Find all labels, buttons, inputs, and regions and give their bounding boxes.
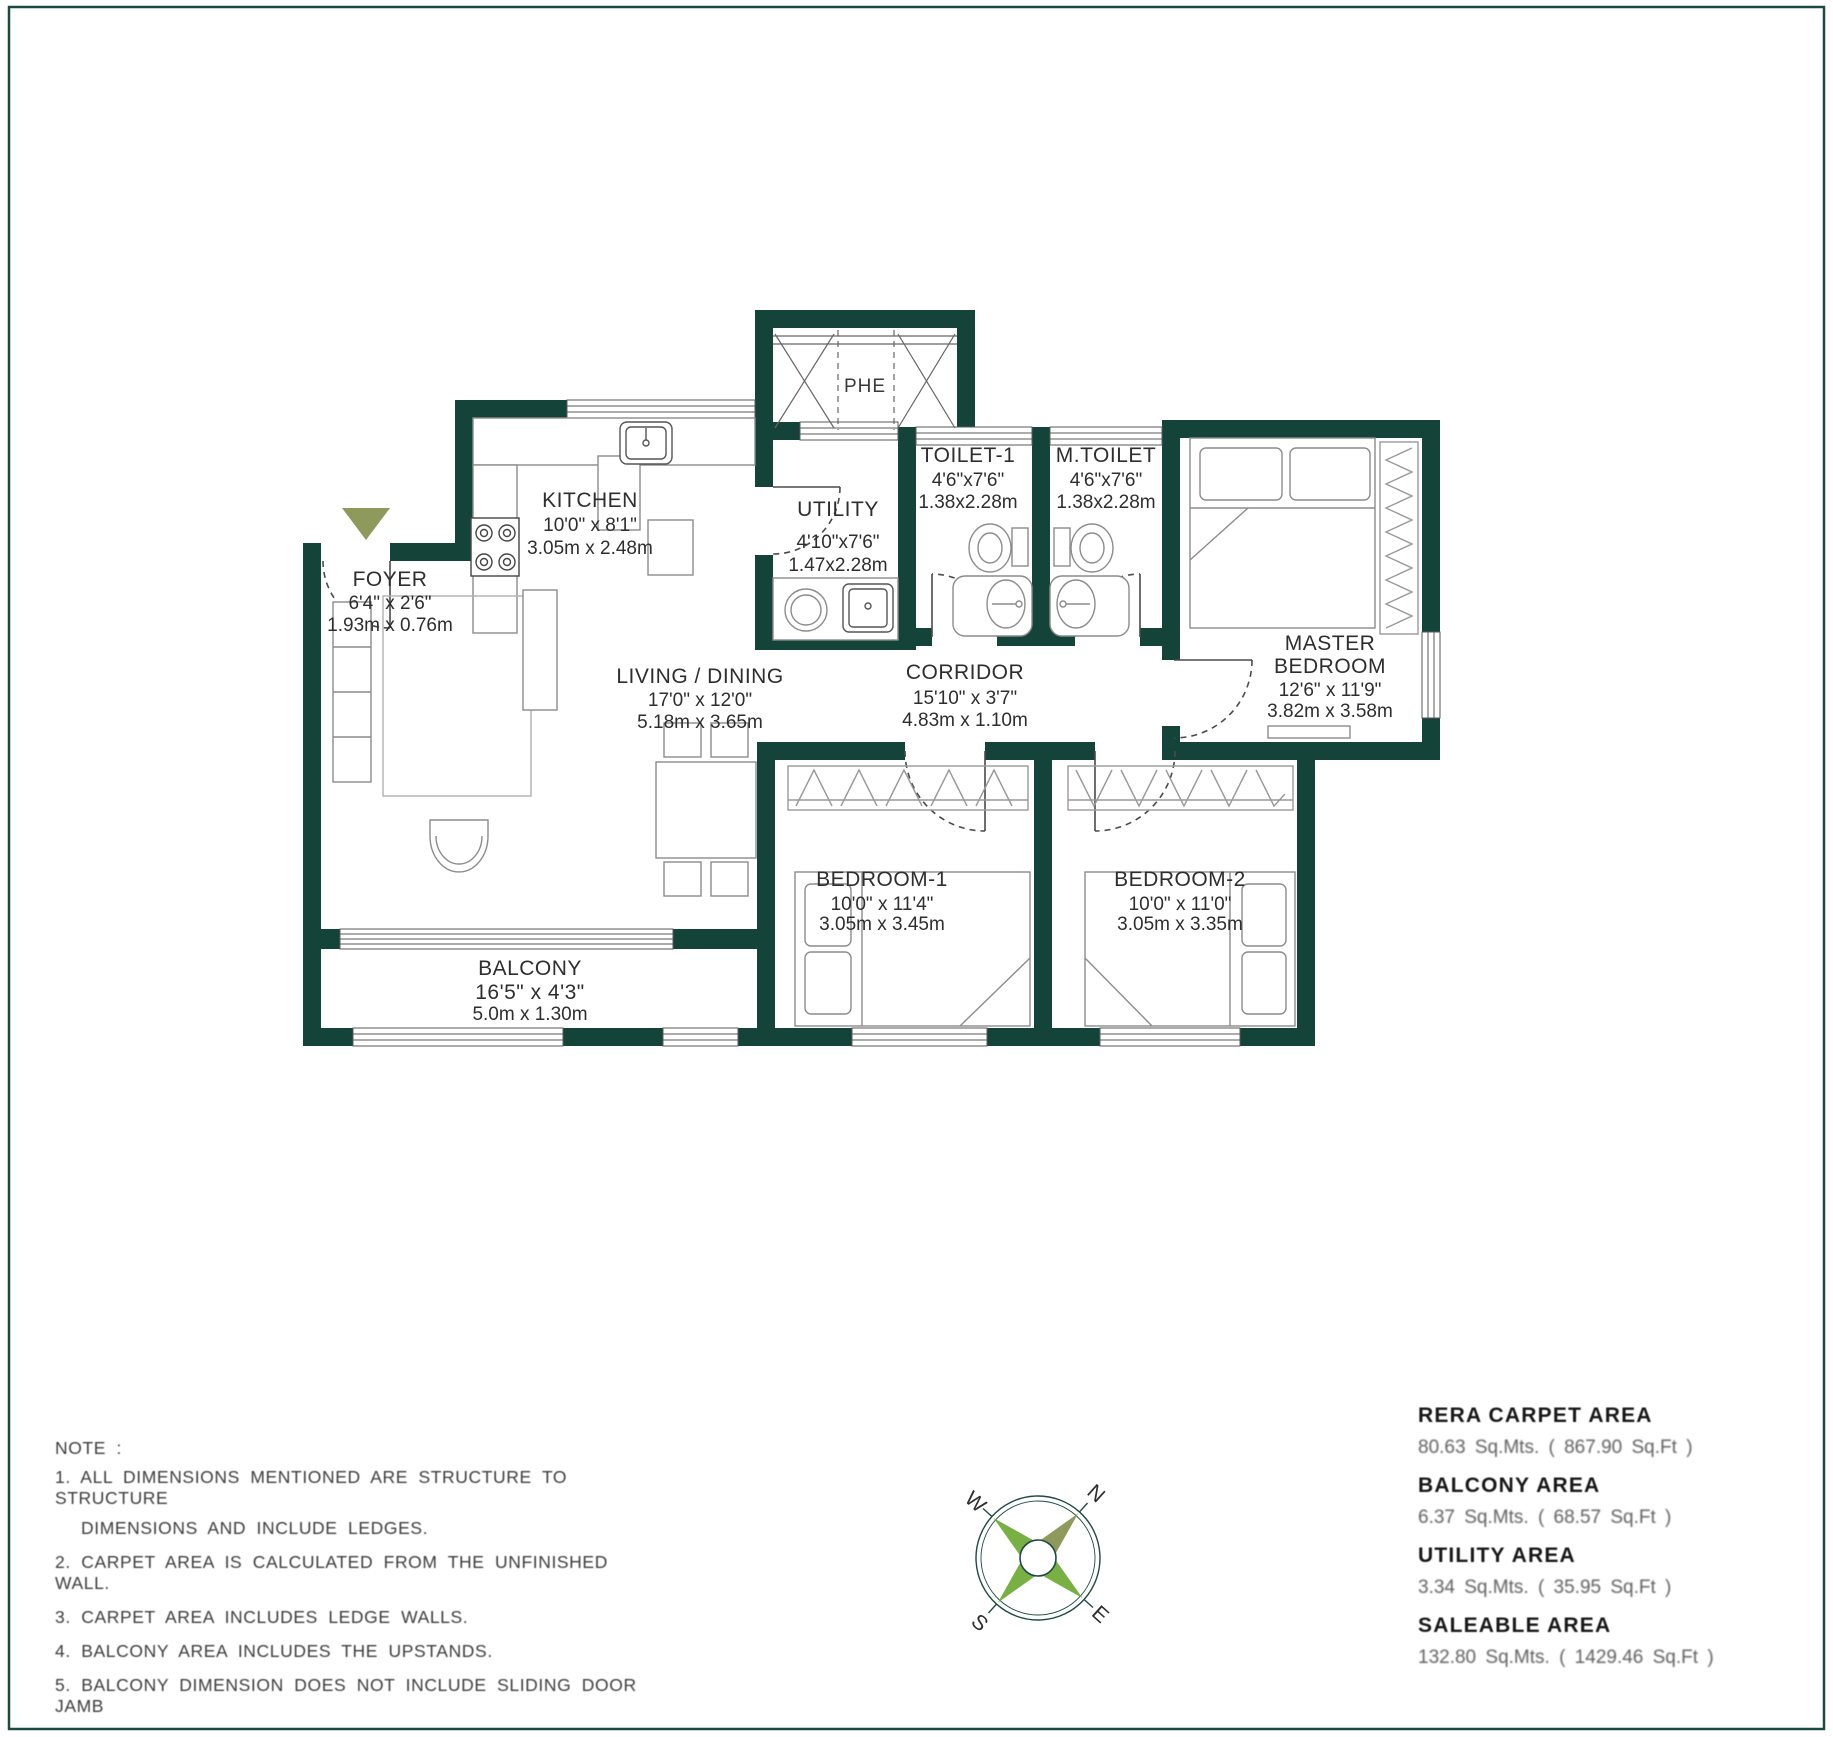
kitchen-sink — [620, 422, 672, 464]
svg-text:UTILITY: UTILITY — [797, 498, 879, 521]
kitchen-window — [567, 400, 755, 418]
entry-arrow-icon — [342, 508, 390, 540]
svg-text:CORRIDOR: CORRIDOR — [906, 661, 1024, 684]
compass-s: S — [967, 1610, 993, 1636]
kitchen-label: KITCHEN 10'0" x 8'1" 3.05m x 2.48m — [527, 489, 653, 559]
svg-text:M.TOILET: M.TOILET — [1056, 444, 1156, 467]
svg-text:10'0" x 11'0": 10'0" x 11'0" — [1129, 894, 1232, 915]
utility-area-label: UTILITY AREA — [1418, 1544, 1818, 1568]
svg-text:1.38x2.28m: 1.38x2.28m — [918, 492, 1017, 513]
balcony-rail — [353, 1028, 563, 1046]
utility-window — [800, 422, 898, 440]
balcony-label: BALCONY 16'5" x 4'3" 5.0m x 1.30m — [472, 957, 587, 1025]
note-item: 5. BALCONY DIMENSION DOES NOT INCLUDE SL… — [55, 1675, 655, 1717]
balcony-window — [663, 1028, 738, 1046]
svg-text:12'6" x 11'9": 12'6" x 11'9" — [1279, 680, 1382, 701]
saleable-area-label: SALEABLE AREA — [1418, 1614, 1818, 1638]
mtoilet-label: M.TOILET 4'6"x7'6" 1.38x2.28m — [1056, 444, 1156, 513]
stove-icon — [471, 518, 519, 576]
master-bedroom-label: MASTER BEDROOM 12'6" x 11'9" 3.82m x 3.5… — [1267, 632, 1393, 722]
bedroom1-window — [852, 1028, 987, 1046]
floorplan-page: { "colors": { "wall": "#14433A", "ring":… — [0, 0, 1833, 1737]
master-wardrobe — [1380, 442, 1418, 634]
master-bed — [1190, 438, 1375, 628]
toilet1-wc-icon — [969, 524, 1028, 572]
balcony-area-label: BALCONY AREA — [1418, 1474, 1818, 1498]
bedroom1-wardrobe — [788, 766, 1028, 810]
note-item: 4. BALCONY AREA INCLUDES THE UPSTANDS. — [55, 1641, 655, 1662]
notes-title: NOTE : — [55, 1438, 655, 1459]
bedroom2-wardrobe — [1068, 766, 1293, 810]
svg-text:LIVING / DINING: LIVING / DINING — [616, 665, 783, 688]
toilet1-basin-icon — [953, 576, 1032, 636]
svg-text:BEDROOM-2: BEDROOM-2 — [1114, 868, 1246, 891]
svg-text:5.18m x 3.65m: 5.18m x 3.65m — [637, 712, 763, 733]
dining-set — [656, 723, 756, 896]
svg-text:4'6"x7'6": 4'6"x7'6" — [932, 470, 1005, 491]
svg-text:16'5" x 4'3": 16'5" x 4'3" — [475, 981, 585, 1004]
svg-text:BEDROOM: BEDROOM — [1274, 655, 1386, 678]
note-item-continued: DIMENSIONS AND INCLUDE LEDGES. — [55, 1518, 655, 1539]
note-item: 3. CARPET AREA INCLUDES LEDGE WALLS. — [55, 1607, 655, 1628]
washing-machine-icon — [785, 589, 827, 631]
area-statement: RERA CARPET AREA 80.63 Sq.Mts. ( 867.90 … — [1418, 1404, 1818, 1684]
saleable-area-value: 132.80 Sq.Mts. ( 1429.46 Sq.Ft ) — [1418, 1647, 1818, 1669]
mtoilet-wc-icon — [1054, 524, 1113, 572]
svg-text:BALCONY: BALCONY — [478, 957, 582, 980]
svg-text:BEDROOM-1: BEDROOM-1 — [816, 868, 948, 891]
notes-block: NOTE : 1. ALL DIMENSIONS MENTIONED ARE S… — [55, 1438, 655, 1730]
svg-text:3.82m x 3.58m: 3.82m x 3.58m — [1267, 701, 1393, 722]
svg-text:1.38x2.28m: 1.38x2.28m — [1056, 492, 1155, 513]
phe-label: PHE — [844, 376, 886, 397]
svg-text:10'0" x 8'1": 10'0" x 8'1" — [543, 515, 637, 536]
living-dining-label: LIVING / DINING 17'0" x 12'0" 5.18m x 3.… — [616, 665, 783, 733]
svg-text:17'0" x 12'0": 17'0" x 12'0" — [648, 690, 752, 711]
toilet1-window — [916, 427, 1032, 445]
tv-unit — [523, 590, 557, 710]
bedroom2-door — [1095, 751, 1175, 831]
mtoilet-basin-icon — [1050, 576, 1129, 636]
mtoilet-window — [1050, 427, 1162, 445]
svg-text:4'6"x7'6": 4'6"x7'6" — [1070, 470, 1143, 491]
svg-text:KITCHEN: KITCHEN — [542, 489, 638, 512]
corridor-label: CORRIDOR 15'10" x 3'7" 4.83m x 1.10m — [902, 661, 1028, 731]
bedroom2-label: BEDROOM-2 10'0" x 11'0" 3.05m x 3.35m — [1114, 868, 1246, 935]
master-door — [1174, 660, 1252, 738]
coffee-table — [430, 820, 488, 872]
svg-text:10'0" x 11'4": 10'0" x 11'4" — [831, 894, 934, 915]
svg-text:6'4" x 2'6": 6'4" x 2'6" — [348, 593, 431, 614]
utility-label: UTILITY 4'10"x7'6" 1.47x2.28m — [788, 498, 887, 576]
utility-area-value: 3.34 Sq.Mts. ( 35.95 Sq.Ft ) — [1418, 1577, 1818, 1599]
bedroom2-window — [1100, 1028, 1240, 1046]
rera-carpet-area-value: 80.63 Sq.Mts. ( 867.90 Sq.Ft ) — [1418, 1437, 1818, 1459]
svg-text:MASTER: MASTER — [1285, 632, 1376, 655]
svg-text:TOILET-1: TOILET-1 — [921, 444, 1016, 467]
svg-text:4'10"x7'6": 4'10"x7'6" — [796, 532, 879, 553]
rera-carpet-area-label: RERA CARPET AREA — [1418, 1404, 1818, 1428]
note-item: 1. ALL DIMENSIONS MENTIONED ARE STRUCTUR… — [55, 1467, 655, 1509]
utility-sink — [843, 584, 893, 632]
svg-text:15'10" x 3'7": 15'10" x 3'7" — [913, 688, 1017, 709]
toilet1-label: TOILET-1 4'6"x7'6" 1.38x2.28m — [918, 444, 1017, 513]
svg-text:1.93m x 0.76m: 1.93m x 0.76m — [327, 615, 453, 636]
balcony-area-value: 6.37 Sq.Mts. ( 68.57 Sq.Ft ) — [1418, 1507, 1818, 1529]
bedroom1-label: BEDROOM-1 10'0" x 11'4" 3.05m x 3.45m — [816, 868, 948, 935]
svg-text:3.05m x 3.45m: 3.05m x 3.45m — [819, 914, 945, 935]
svg-text:5.0m x 1.30m: 5.0m x 1.30m — [472, 1004, 587, 1025]
compass-rose: N E S W — [933, 1448, 1143, 1668]
svg-text:FOYER: FOYER — [353, 568, 428, 591]
master-bench — [1268, 726, 1350, 738]
balcony-sliding-door — [340, 929, 673, 949]
compass-w: W — [960, 1487, 990, 1517]
bedroom1-door — [905, 751, 985, 831]
svg-text:1.47x2.28m: 1.47x2.28m — [788, 555, 887, 576]
master-window — [1422, 632, 1440, 718]
svg-text:3.05m x 2.48m: 3.05m x 2.48m — [527, 538, 653, 559]
svg-text:4.83m x 1.10m: 4.83m x 1.10m — [902, 710, 1028, 731]
note-item: 2. CARPET AREA IS CALCULATED FROM THE UN… — [55, 1552, 655, 1594]
svg-text:3.05m x 3.35m: 3.05m x 3.35m — [1117, 914, 1243, 935]
